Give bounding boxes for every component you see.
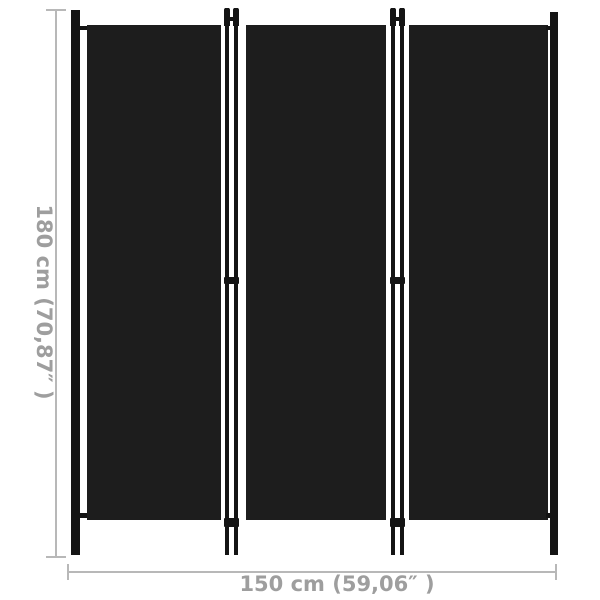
width-dimension-left-cap <box>67 564 69 580</box>
hinge-middle <box>390 277 405 284</box>
hinge-bottom <box>390 518 405 527</box>
height-dimension-label: 180 cm (70,87″ ) <box>32 204 56 399</box>
width-dimension-right-cap <box>555 564 557 580</box>
frame-pole-left <box>71 10 80 555</box>
hinge-top <box>391 17 404 21</box>
frame-pole-right <box>550 12 558 555</box>
height-dimension-bottom-cap <box>46 556 66 558</box>
hinge-column-2 <box>390 8 405 555</box>
product-dimension-diagram: 180 cm (70,87″ ) 150 cm (59,06″ ) <box>0 0 600 600</box>
hinge-bottom <box>224 518 239 527</box>
hinge-column-1 <box>224 8 239 555</box>
width-dimension-label: 150 cm (59,06″ ) <box>239 572 434 596</box>
hinge-middle <box>224 277 239 284</box>
divider-panel-2 <box>246 25 386 520</box>
divider-panel-1 <box>87 25 221 520</box>
height-dimension-top-cap <box>46 9 66 11</box>
divider-panel-3 <box>409 25 548 520</box>
hinge-top <box>225 17 238 21</box>
